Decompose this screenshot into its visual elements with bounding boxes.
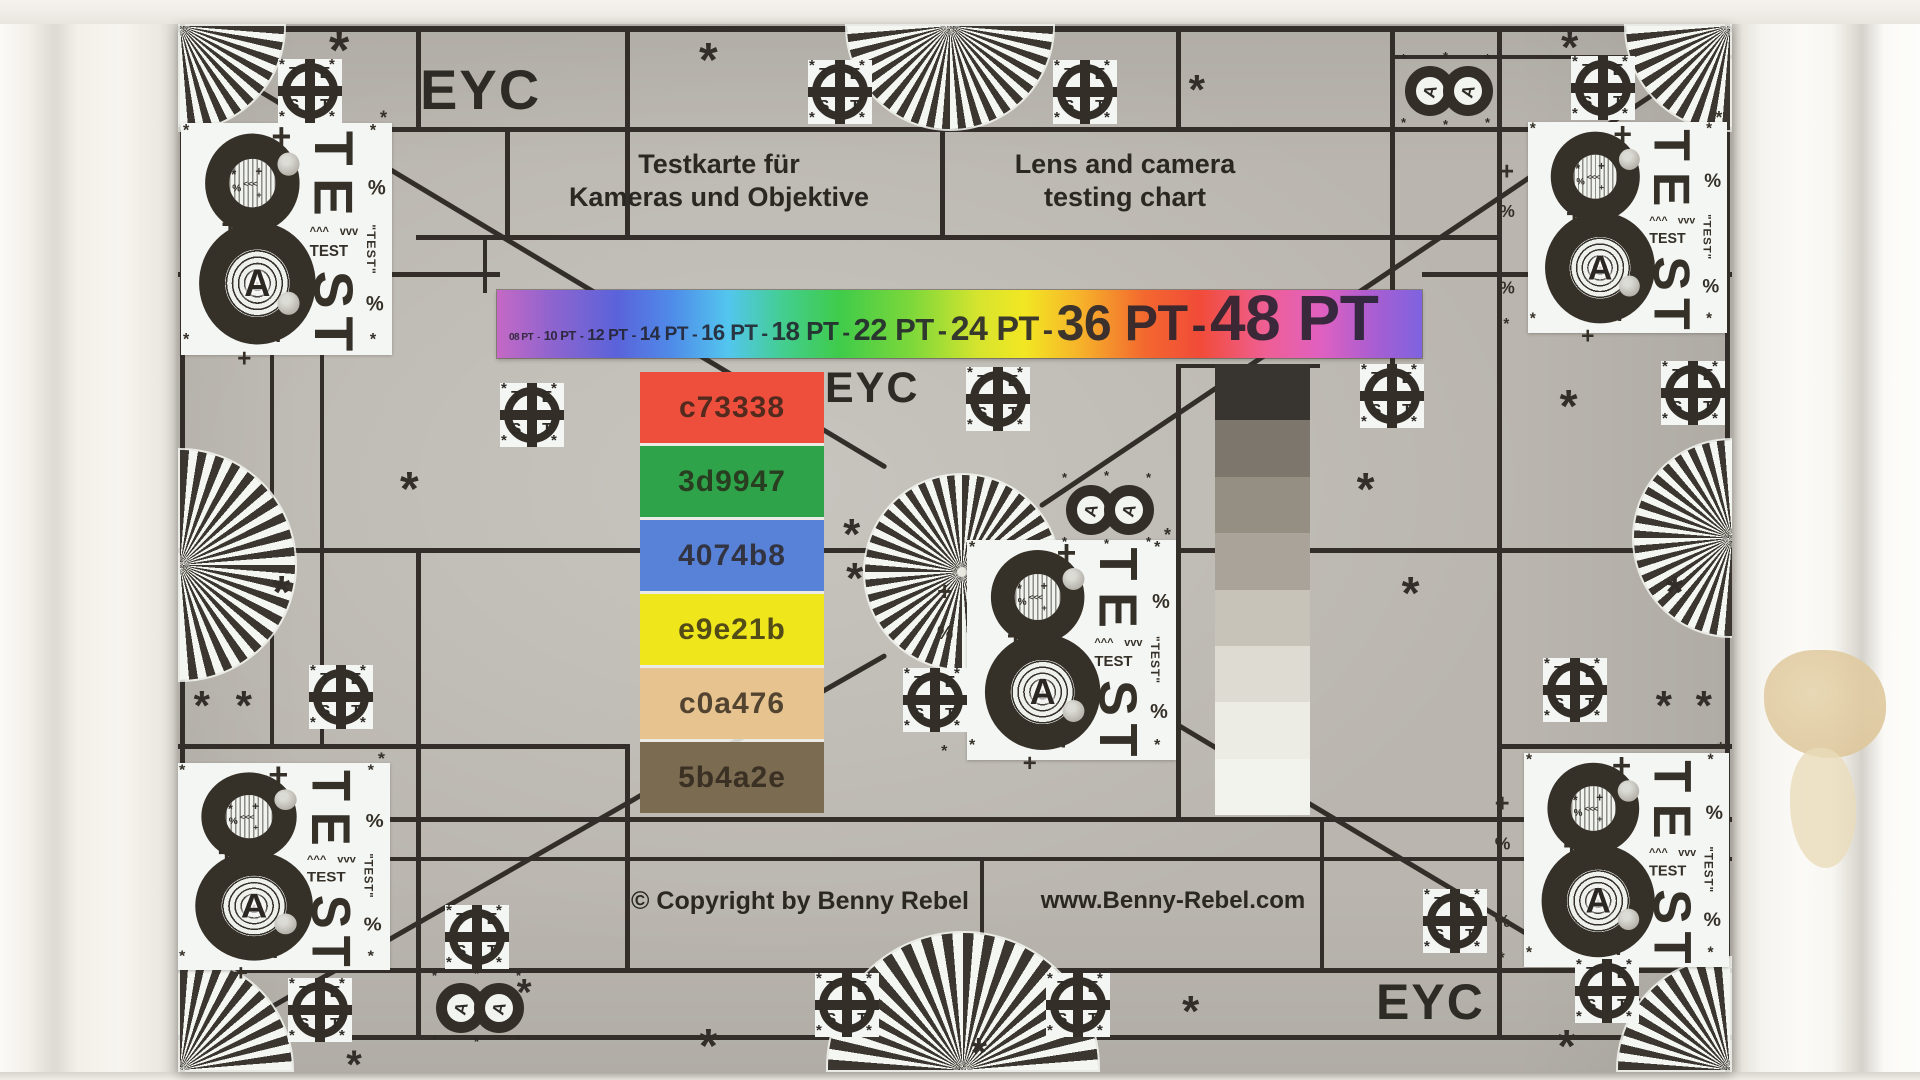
test-target-corner-asterisk: * <box>1424 887 1430 902</box>
test-target-cross-horizontal <box>288 1005 352 1015</box>
block-glyph: % <box>1152 592 1170 612</box>
test-target-cross-horizontal <box>808 87 872 97</box>
micro-glyph: % <box>1576 178 1584 188</box>
block-glyph: * <box>1708 946 1714 962</box>
double-circle-letter: A <box>451 1000 471 1016</box>
test-target-corner-asterisk: * <box>1576 957 1582 972</box>
test-target-letter-S: S <box>1549 697 1569 713</box>
double-circle-target: AA****** <box>436 979 524 1037</box>
vertical-letter-S: S <box>1643 883 1700 930</box>
test-target-corner-asterisk: * <box>279 57 285 72</box>
test-target-corner-asterisk: * <box>360 715 366 730</box>
test-target-letter-S: S <box>1052 1012 1072 1028</box>
block-glyph: % <box>368 178 386 199</box>
vertical-letter-glyph: E <box>1646 172 1697 207</box>
side-label-rotated: "TEST" <box>1148 636 1162 684</box>
block-glyph: * <box>1706 312 1712 327</box>
test-target-corner-asterisk: * <box>1712 411 1718 426</box>
gray-dot <box>1619 275 1640 296</box>
starburst-fan-top-right <box>1626 26 1730 130</box>
test-target-letter-S: S <box>284 98 304 114</box>
block-glyph: vvv <box>337 855 356 865</box>
block-glyph: % <box>1500 203 1515 220</box>
test-target: TEST**** <box>1360 364 1424 428</box>
grayscale-step-5 <box>1215 590 1310 646</box>
test-target-corner-asterisk: * <box>310 715 316 730</box>
block-glyph: * <box>969 738 975 754</box>
test-target-corner-asterisk: * <box>289 976 295 991</box>
font-size-label: 12 PT <box>587 327 627 344</box>
test-target: TEST**** <box>1575 959 1639 1023</box>
block-glyph: * <box>1154 738 1160 754</box>
test-target-letter-S: S <box>814 99 834 115</box>
double-circle-letter: A <box>1081 502 1101 518</box>
double-circle-letter: A <box>1119 502 1139 518</box>
grayscale-step-3 <box>1215 477 1310 533</box>
micro-glyph: + <box>255 165 262 178</box>
asterisk-mark: * <box>1656 685 1672 727</box>
block-glyph: + <box>1563 833 1580 862</box>
vertical-letter-E: E <box>304 172 362 223</box>
grid-line-vertical <box>1176 364 1181 817</box>
vertical-letter-glyph: S <box>303 895 358 929</box>
top-ring-micro-pattern: *%+<<<+ <box>1015 574 1061 620</box>
color-patch-4074b8: 4074b8 <box>640 520 824 591</box>
grayscale-step-8 <box>1215 759 1310 815</box>
test-target-corner-asterisk: * <box>1626 1009 1632 1024</box>
test-target-corner-asterisk: * <box>967 417 973 432</box>
block-glyph: % <box>366 294 384 315</box>
test-target: TEST**** <box>1543 658 1607 722</box>
asterisk-mark: * <box>346 1045 362 1072</box>
vertical-letter-glyph: S <box>1090 680 1144 716</box>
block-glyph: * <box>179 763 185 778</box>
block-glyph: + <box>1581 325 1594 348</box>
micro-glyph: <<< <box>1029 594 1043 602</box>
test-target-corner-asterisk: * <box>1622 54 1628 69</box>
block-glyph: + <box>1023 752 1037 776</box>
test-target-corner-asterisk: * <box>809 110 815 125</box>
test-target-letter-S: S <box>1577 95 1597 111</box>
test-target-corner-asterisk: * <box>954 666 960 681</box>
color-patch-e9e21b: e9e21b <box>640 594 824 665</box>
micro-glyph: <<< <box>243 180 257 188</box>
test-target-corner-asterisk: * <box>1097 1023 1103 1038</box>
letter-a: A <box>1030 674 1056 710</box>
top-ring-micro-pattern: *%+<<<+ <box>226 795 273 838</box>
vertical-letter-glyph: S <box>1646 256 1697 291</box>
vertical-letter-E: E <box>301 806 360 851</box>
block-glyph: + <box>1612 749 1631 782</box>
micro-glyph: * <box>1575 162 1580 174</box>
double-circle-asterisk: * <box>1485 52 1490 65</box>
color-patch-label: e9e21b <box>678 613 786 647</box>
double-circle-target: AA****** <box>1405 62 1493 120</box>
font-size-label: 14 PT <box>640 324 688 345</box>
test-target-corner-asterisk: * <box>1474 887 1480 902</box>
double-circle-asterisk: * <box>1146 535 1151 548</box>
asterisk-mark: * <box>1560 383 1578 429</box>
block-glyph: * <box>1154 540 1160 556</box>
test-target-corner-asterisk: * <box>551 381 557 396</box>
top-ring-micro-pattern: *%+<<<+ <box>1571 786 1616 831</box>
micro-glyph: + <box>252 801 259 812</box>
asterisk-mark: * <box>236 685 252 727</box>
block-glyph: * <box>183 332 189 349</box>
test-target-cross-horizontal <box>1571 83 1635 93</box>
asterisk-mark: * <box>517 974 532 1012</box>
wall-left-trim <box>0 0 178 1080</box>
double-circle-asterisk: * <box>474 967 479 980</box>
test-target-corner-asterisk: * <box>1622 106 1628 121</box>
test-target-letter-S: S <box>451 944 471 960</box>
micro-glyph: + <box>1596 792 1603 804</box>
grid-line-vertical <box>505 127 510 235</box>
color-patch-label: c0a476 <box>679 687 785 721</box>
vertical-letter-glyph: T <box>1645 931 1698 963</box>
vertical-letter-glyph: E <box>306 178 360 216</box>
test-target-corner-asterisk: * <box>1662 359 1668 374</box>
micro-glyph: * <box>231 167 236 181</box>
test-target: TEST**** <box>1571 56 1635 120</box>
block-glyph: * <box>1706 122 1712 137</box>
font-size-rainbow-bar: 08 PT-10 PT-12 PT-14 PT-16 PT-18 PT-22 P… <box>497 290 1422 358</box>
vertical-letter-glyph: E <box>303 812 358 846</box>
micro-glyph: + <box>1597 815 1602 824</box>
vertical-letter-glyph: E <box>1090 592 1144 628</box>
micro-glyph: * <box>228 803 233 815</box>
vertical-letter-T: T <box>1643 753 1700 800</box>
block-glyph: TEST <box>1649 864 1686 879</box>
test-target-cross-horizontal <box>1423 916 1487 926</box>
gray-dot <box>274 789 296 810</box>
resolution-block-inner: *%+<<<+ATEST^^^vvvTEST<<<+++%%****+%%*+*… <box>181 123 392 355</box>
block-glyph: * <box>183 123 189 140</box>
test-target: TEST**** <box>500 383 564 447</box>
grid-line-horizontal <box>178 744 625 749</box>
block-glyph: % <box>1704 172 1721 191</box>
letter-a: A <box>241 889 267 923</box>
color-patch-5b4a2e: 5b4a2e <box>640 742 824 813</box>
test-target-corner-asterisk: * <box>1054 110 1060 125</box>
micro-glyph: % <box>232 184 241 195</box>
font-size-separator: - <box>692 325 697 344</box>
double-circle-asterisk: * <box>474 1035 479 1048</box>
test-target-letter-T: T <box>821 980 841 996</box>
letter-a: A <box>244 264 270 302</box>
vertical-letter-E: E <box>1644 166 1699 212</box>
vertical-letter-T: T <box>1644 122 1699 168</box>
test-target-corner-asterisk: * <box>1712 359 1718 374</box>
test-target-corner-asterisk: * <box>816 1023 822 1038</box>
double-circle-asterisk: * <box>1443 118 1448 131</box>
resolution-block-top-left: *%+<<<+ATEST^^^vvvTEST<<<+++%%****+%%*+*… <box>181 123 392 355</box>
test-target-cross-horizontal <box>1661 388 1725 398</box>
font-size-separator: - <box>1192 299 1207 350</box>
test-target-corner-asterisk: * <box>1576 1009 1582 1024</box>
vertical-letter-T: T <box>1644 291 1699 337</box>
micro-glyph: + <box>256 190 261 199</box>
block-glyph: * <box>1717 739 1724 757</box>
resolution-block-bottom-left: *%+<<<+ATEST^^^vvvTEST<<<+++%%****+%%*+*… <box>178 763 390 970</box>
double-circle-asterisk: * <box>1104 469 1109 482</box>
test-target-letter-T: T <box>294 985 314 1001</box>
micro-glyph: * <box>1573 794 1578 807</box>
test-target-letter-T: T <box>1059 67 1079 83</box>
side-label-rotated: "TEST" <box>1700 214 1713 260</box>
block-glyph: % <box>364 915 382 934</box>
vertical-letter-T: T <box>1643 924 1700 971</box>
test-target-corner-asterisk: * <box>1104 58 1110 73</box>
block-glyph: + <box>1500 158 1514 183</box>
double-circle-asterisk: * <box>1062 471 1067 484</box>
double-circle-asterisk: * <box>1401 52 1406 65</box>
vertical-letter-T: T <box>1088 716 1146 764</box>
asterisk-mark: * <box>1561 26 1578 70</box>
vertical-letter-glyph: S <box>1645 889 1698 924</box>
block-glyph: % <box>1495 835 1511 853</box>
grayscale-step-1 <box>1215 364 1310 420</box>
vertical-letter-glyph: T <box>1645 760 1698 792</box>
vertical-letter-glyph: T <box>306 317 360 352</box>
test-target-letter-T: T <box>506 390 526 406</box>
test-target-letter-S: S <box>506 422 526 438</box>
copyright-text: © Copyright by Benny Rebel <box>630 887 970 916</box>
test-target: TEST**** <box>1053 60 1117 124</box>
title-english-line1: Lens and camera <box>960 148 1290 181</box>
vertical-letter-S: S <box>304 264 362 315</box>
resolution-block-center: *%+<<<+ATEST^^^vvvTEST<<<+++%%****+%%*+*… <box>967 540 1176 760</box>
block-glyph: vvv <box>340 226 358 238</box>
test-target: TEST**** <box>1661 361 1725 425</box>
block-glyph: + <box>1055 726 1072 756</box>
double-circle-target: AA****** <box>1066 481 1154 539</box>
font-size-separator: - <box>842 319 849 345</box>
double-circle-asterisk: * <box>1062 535 1067 548</box>
test-target-corner-asterisk: * <box>496 955 502 970</box>
font-size-labels: 08 PT-10 PT-12 PT-14 PT-16 PT-18 PT-22 P… <box>509 286 1422 350</box>
test-target-corner-asterisk: * <box>866 1023 872 1038</box>
test-target-corner-asterisk: * <box>339 976 345 991</box>
test-target-cross-horizontal <box>445 932 509 942</box>
grayscale-step-2 <box>1215 420 1310 476</box>
block-glyph: TEST <box>1649 231 1685 245</box>
font-size-separator: - <box>580 329 584 343</box>
micro-glyph: + <box>1599 183 1604 192</box>
block-glyph: % <box>1706 804 1723 823</box>
block-glyph: + <box>937 578 952 604</box>
test-target-corner-asterisk: * <box>360 663 366 678</box>
block-glyph: * <box>1503 318 1509 333</box>
resolution-block-top-right: *%+<<<+ATEST^^^vvvTEST<<<+++%%****+%%*+*… <box>1528 122 1727 333</box>
website-text: www.Benny-Rebel.com <box>1023 887 1323 915</box>
eyc-label-bottom-right: EYC <box>1376 977 1485 1027</box>
test-target-corner-asterisk: * <box>339 1028 345 1043</box>
test-target-letter-S: S <box>1667 400 1687 416</box>
block-glyph: * <box>1164 526 1171 544</box>
block-glyph: + <box>1611 300 1628 329</box>
test-target: TEST**** <box>808 60 872 124</box>
test-target-letter-T: T <box>1366 371 1386 387</box>
test-target-letter-T: T <box>1052 980 1072 996</box>
asterisk-mark: * <box>1182 990 1199 1034</box>
test-target-cross-horizontal <box>1575 986 1639 996</box>
block-glyph: * <box>1499 951 1505 967</box>
block-glyph: <<< <box>260 861 287 875</box>
vertical-letter-T: T <box>1088 540 1146 588</box>
vertical-letter-S: S <box>1644 251 1699 297</box>
test-target-letter-S: S <box>1581 998 1601 1014</box>
asterisk-mark: * <box>1558 1023 1576 1069</box>
double-circle-ring: A <box>1104 485 1154 535</box>
block-glyph: + <box>1007 622 1024 652</box>
block-glyph: + <box>221 209 239 241</box>
block-glyph: vvv <box>1678 848 1696 859</box>
micro-glyph: <<< <box>1587 174 1600 182</box>
block-glyph: <<< <box>1606 222 1631 236</box>
test-target-letter-T: T <box>972 374 992 390</box>
color-patch-label: 4074b8 <box>678 539 786 573</box>
micro-glyph: + <box>253 823 258 831</box>
siemens-star-center-dot <box>957 567 967 577</box>
gray-dot <box>277 153 299 176</box>
test-target-corner-asterisk: * <box>866 971 872 986</box>
asterisk-mark: * <box>971 1032 987 1072</box>
test-target-corner-asterisk: * <box>809 58 815 73</box>
letter-a: A <box>1588 251 1613 286</box>
asterisk-mark: * <box>699 37 718 85</box>
gray-dot <box>274 914 296 935</box>
block-glyph: ^^^ <box>1094 638 1113 649</box>
block-glyph: TEST <box>310 243 349 259</box>
font-size-label: 36 PT <box>1057 295 1188 351</box>
block-glyph: % <box>1704 911 1721 930</box>
block-glyph: ^^^ <box>1649 216 1667 227</box>
block-glyph: * <box>378 750 385 767</box>
test-target-corner-asterisk: * <box>1411 362 1417 377</box>
block-glyph: + <box>234 962 248 985</box>
side-label-rotated: "TEST" <box>362 853 376 898</box>
micro-glyph: + <box>1042 604 1047 613</box>
test-target-corner-asterisk: * <box>501 381 507 396</box>
wall-top-strip <box>0 0 1920 24</box>
grayscale-step-6 <box>1215 646 1310 702</box>
block-glyph: * <box>380 108 387 127</box>
vertical-letter-glyph: S <box>306 271 360 309</box>
micro-glyph: <<< <box>240 814 254 822</box>
test-target-corner-asterisk: * <box>496 903 502 918</box>
color-patch-c0a476: c0a476 <box>640 668 824 739</box>
test-target-corner-asterisk: * <box>329 109 335 124</box>
grayscale-step-7 <box>1215 702 1310 758</box>
block-glyph: + <box>266 938 284 966</box>
block-glyph: TEST <box>1094 654 1132 669</box>
test-target-cross-horizontal <box>1360 391 1424 401</box>
resolution-block-bottom-right: *%+<<<+ATEST^^^vvvTEST<<<+++%%****+%%*+*… <box>1524 753 1729 967</box>
test-target-corner-asterisk: * <box>1104 110 1110 125</box>
block-glyph: * <box>179 949 185 964</box>
test-target-corner-asterisk: * <box>1047 1023 1053 1038</box>
test-target-corner-asterisk: * <box>446 903 452 918</box>
wall-bottom-strip <box>0 1072 1920 1080</box>
block-glyph: * <box>969 540 975 556</box>
double-circle-asterisk: * <box>432 1033 437 1046</box>
grid-line-vertical <box>483 235 487 293</box>
font-size-label: 10 PT <box>544 328 576 343</box>
block-glyph: * <box>368 763 374 778</box>
color-patch-3d9947: 3d9947 <box>640 446 824 517</box>
gray-dot <box>1618 780 1639 801</box>
block-glyph: % <box>366 812 384 831</box>
test-target-letter-T: T <box>1667 368 1687 384</box>
block-glyph: % <box>937 624 953 642</box>
double-circle-letter: A <box>1420 83 1440 99</box>
test-target: TEST**** <box>445 905 509 969</box>
font-size-label: 48 PT <box>1210 282 1378 354</box>
asterisk-mark: * <box>843 513 860 557</box>
asterisk-mark: * <box>1357 466 1375 512</box>
block-glyph: + <box>1495 790 1510 815</box>
double-circle-asterisk: * <box>1485 116 1490 129</box>
asterisk-mark: * <box>273 569 291 615</box>
test-target-corner-asterisk: * <box>1424 939 1430 954</box>
test-target-corner-asterisk: * <box>1411 414 1417 429</box>
starburst-fan-top-left <box>180 26 284 130</box>
vertical-letter-S: S <box>1088 674 1146 722</box>
block-glyph: % <box>1500 279 1515 296</box>
test-target-corner-asterisk: * <box>279 109 285 124</box>
vertical-letter-T: T <box>304 309 362 360</box>
test-target-corner-asterisk: * <box>1017 365 1023 380</box>
font-size-separator: - <box>632 327 636 343</box>
font-size-separator: - <box>938 315 947 346</box>
test-target-letter-S: S <box>315 704 335 720</box>
test-target-corner-asterisk: * <box>1594 656 1600 671</box>
starburst-fan-top-center <box>847 26 1053 129</box>
vertical-letter-T: T <box>304 123 362 174</box>
test-target-cross-horizontal <box>1046 1000 1110 1010</box>
top-ring-micro-pattern: *%+<<<+ <box>1573 155 1617 199</box>
resolution-block-inner: *%+<<<+ATEST^^^vvvTEST<<<+++%%****+%%*+*… <box>1524 753 1729 967</box>
test-target-corner-asterisk: * <box>1544 708 1550 723</box>
vertical-letter-T: T <box>301 929 360 974</box>
asterisk-mark: * <box>400 466 419 514</box>
block-glyph: * <box>1526 753 1532 769</box>
test-target: TEST**** <box>815 973 879 1037</box>
block-glyph: + <box>269 319 287 351</box>
vertical-letter-glyph: T <box>1090 548 1144 581</box>
vertical-letter-glyph: T <box>1646 129 1697 161</box>
test-target: TEST**** <box>1423 889 1487 953</box>
test-target-corner-asterisk: * <box>1047 971 1053 986</box>
micro-glyph: % <box>229 818 238 827</box>
font-size-label: 16 PT <box>701 320 757 345</box>
color-patch-label: 5b4a2e <box>678 761 786 795</box>
wall-right-trim <box>1732 0 1920 1080</box>
block-glyph: vvv <box>1124 638 1142 649</box>
double-circle-ring: A <box>1443 66 1493 116</box>
test-target-corner-asterisk: * <box>310 663 316 678</box>
grid-line-vertical <box>940 127 945 235</box>
micro-glyph: * <box>1017 582 1022 595</box>
eyc-label-center: EYC <box>825 367 919 410</box>
test-target-letter-S: S <box>294 1017 314 1033</box>
side-label-rotated: "TEST" <box>1702 846 1716 893</box>
test-target: TEST**** <box>966 367 1030 431</box>
block-glyph: % <box>1495 913 1511 931</box>
resolution-block-inner: *%+<<<+ATEST^^^vvvTEST<<<+++%%****+%%*+*… <box>178 763 390 970</box>
vertical-letter-glyph: T <box>1646 298 1697 330</box>
